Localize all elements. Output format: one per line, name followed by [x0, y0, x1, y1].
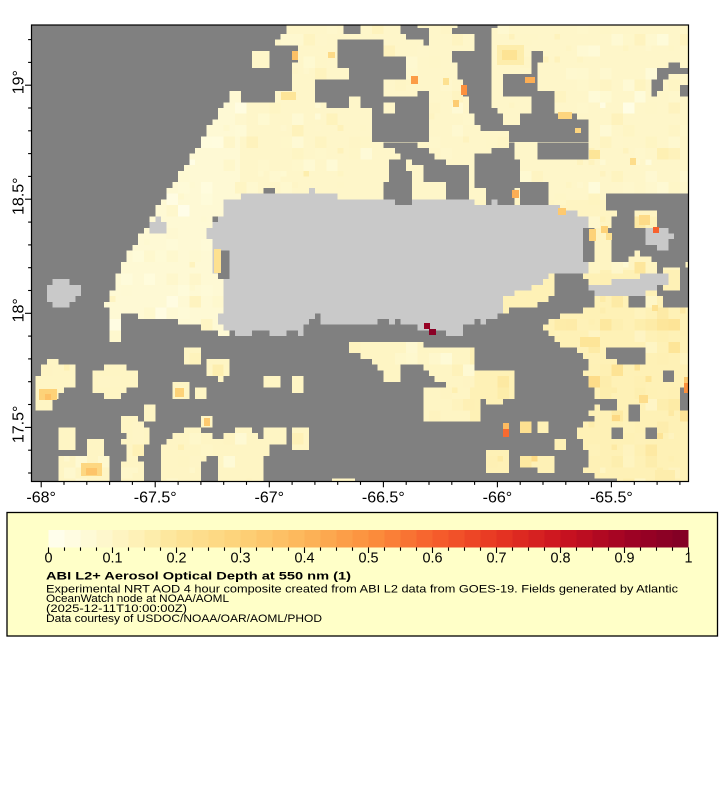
- svg-text:0.2: 0.2: [166, 551, 186, 567]
- svg-text:0.3: 0.3: [230, 551, 250, 567]
- svg-text:0: 0: [44, 551, 52, 567]
- svg-text:18.5°: 18.5°: [11, 177, 28, 215]
- svg-text:-67°: -67°: [255, 489, 285, 506]
- svg-text:0.1: 0.1: [102, 551, 122, 567]
- svg-text:-66°: -66°: [483, 489, 513, 506]
- svg-text:0.4: 0.4: [294, 551, 314, 567]
- svg-text:-66.5°: -66.5°: [362, 489, 405, 506]
- svg-text:Data courtesy of USDOC/NOAA/OA: Data courtesy of USDOC/NOAA/OAR/AOML/PHO…: [46, 613, 322, 625]
- svg-text:0.5: 0.5: [358, 551, 378, 567]
- svg-text:0.6: 0.6: [422, 551, 442, 567]
- svg-text:-65.5°: -65.5°: [590, 489, 633, 506]
- svg-text:17.5°: 17.5°: [11, 406, 28, 444]
- svg-text:1: 1: [684, 551, 692, 567]
- svg-text:0.8: 0.8: [550, 551, 570, 567]
- svg-text:ABI L2+ Aerosol Optical Depth: ABI L2+ Aerosol Optical Depth at 550 nm …: [46, 571, 351, 583]
- svg-text:19°: 19°: [11, 70, 28, 94]
- svg-text:-67.5°: -67.5°: [134, 489, 177, 506]
- svg-text:18°: 18°: [11, 298, 28, 322]
- svg-text:0.7: 0.7: [486, 551, 506, 567]
- svg-text:0.9: 0.9: [614, 551, 634, 567]
- svg-text:-68°: -68°: [26, 489, 56, 506]
